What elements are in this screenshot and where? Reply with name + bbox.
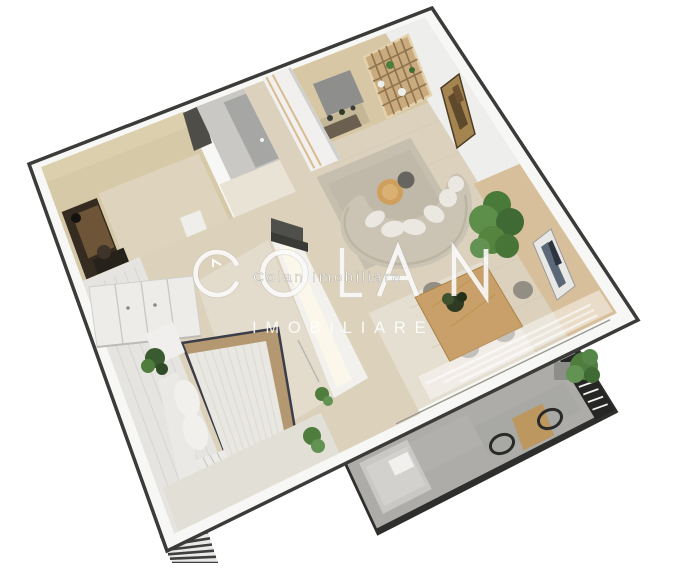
svg-text:Colan Imobiliare: Colan Imobiliare bbox=[253, 269, 403, 286]
svg-text:IMOBILIARE: IMOBILIARE bbox=[252, 319, 434, 337]
